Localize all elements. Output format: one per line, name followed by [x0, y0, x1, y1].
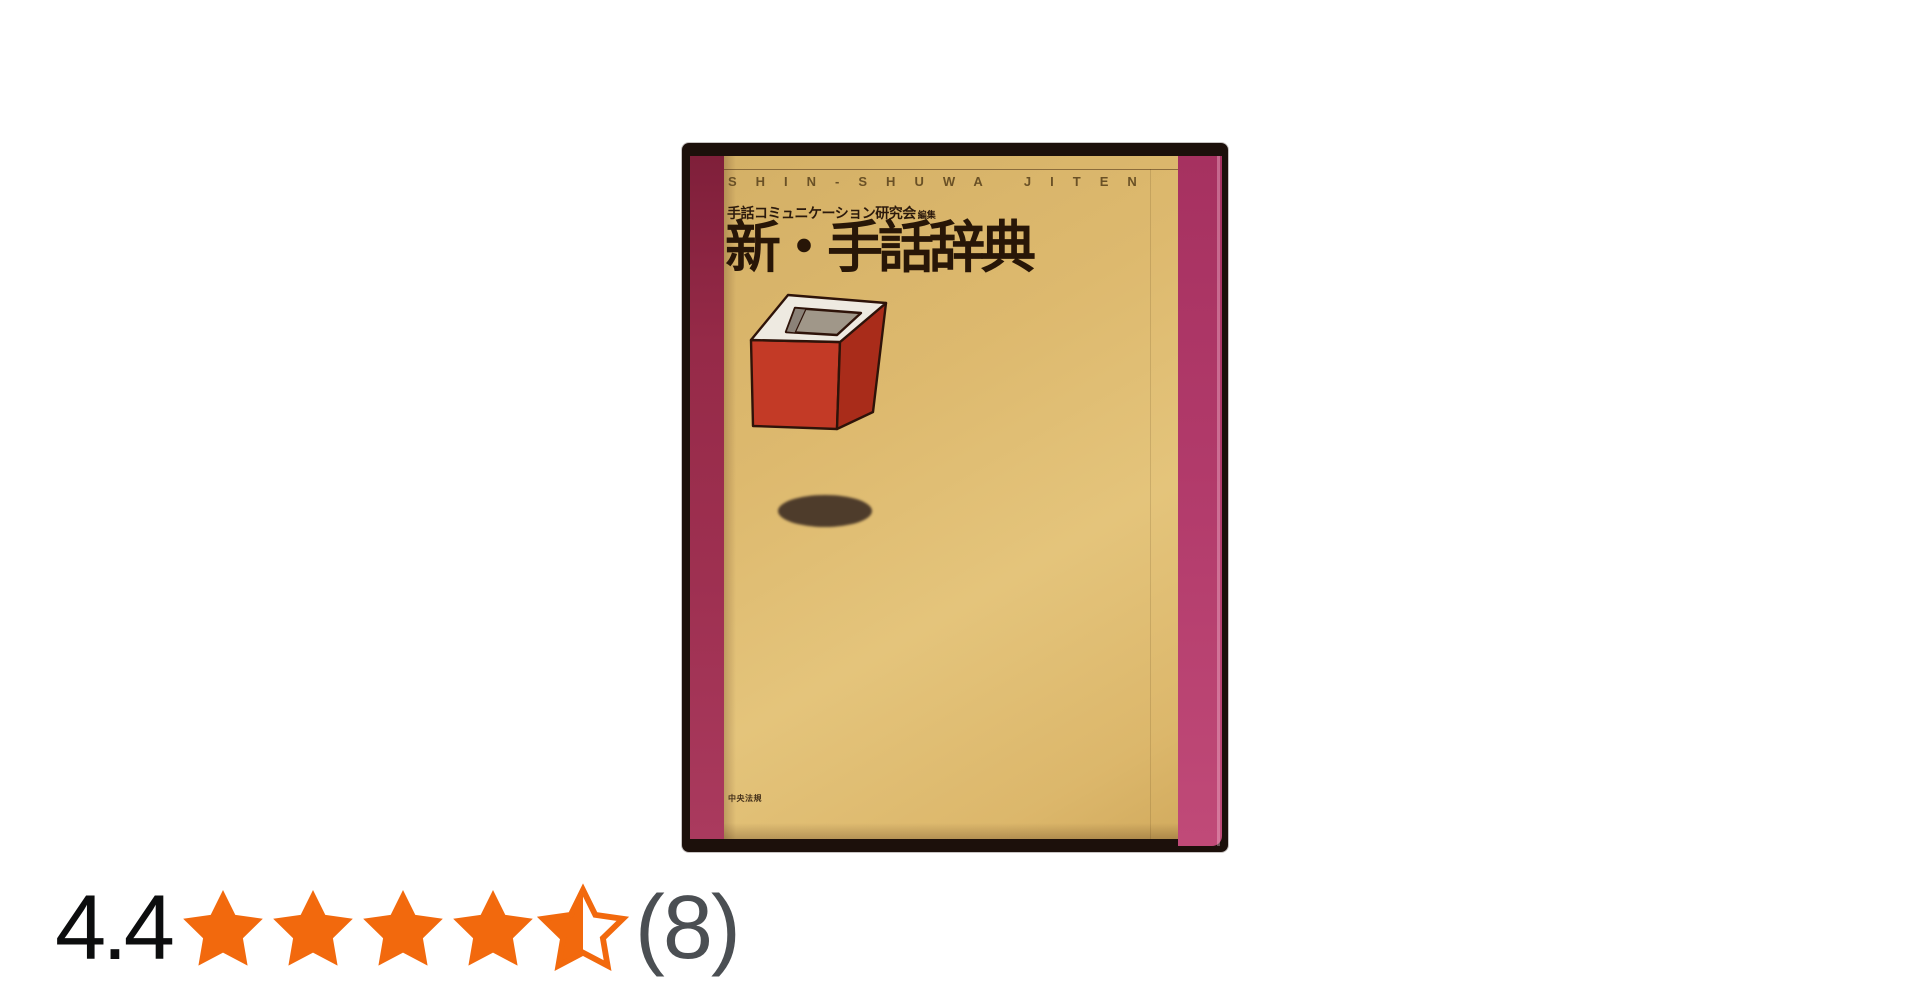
product-listing: SHIN-SHUWA JITEN 手話コミュニケーション研究会編集 新・手話辞典…	[0, 0, 1910, 1000]
cover-top-rule	[724, 169, 1180, 170]
star-gradient-defs	[177, 884, 269, 972]
cube-shadow-ellipse	[778, 495, 872, 527]
rating-row: 4.4 (8)	[55, 872, 739, 984]
cover-flap-crease	[1150, 169, 1151, 839]
product-image[interactable]: SHIN-SHUWA JITEN 手話コミュニケーション研究会編集 新・手話辞典…	[682, 143, 1228, 852]
book-front-cover: SHIN-SHUWA JITEN 手話コミュニケーション研究会編集 新・手話辞典…	[724, 156, 1180, 839]
star-full-icon	[447, 884, 539, 972]
rating-score: 4.4	[55, 882, 171, 974]
cube-illustration	[748, 291, 898, 433]
cover-romaji-caption: SHIN-SHUWA JITEN	[728, 174, 1156, 189]
star-rating[interactable]	[177, 884, 627, 972]
cube-front-face	[751, 340, 840, 429]
cover-publisher: 中央法規	[728, 793, 762, 804]
cover-title: 新・手話辞典	[725, 220, 1031, 276]
review-count[interactable]: (8)	[635, 883, 739, 973]
star-half-icon	[537, 884, 629, 972]
book-spine	[690, 156, 724, 839]
star-full-icon	[357, 884, 449, 972]
book-right-band	[1178, 156, 1222, 846]
star-full-icon	[267, 884, 359, 972]
